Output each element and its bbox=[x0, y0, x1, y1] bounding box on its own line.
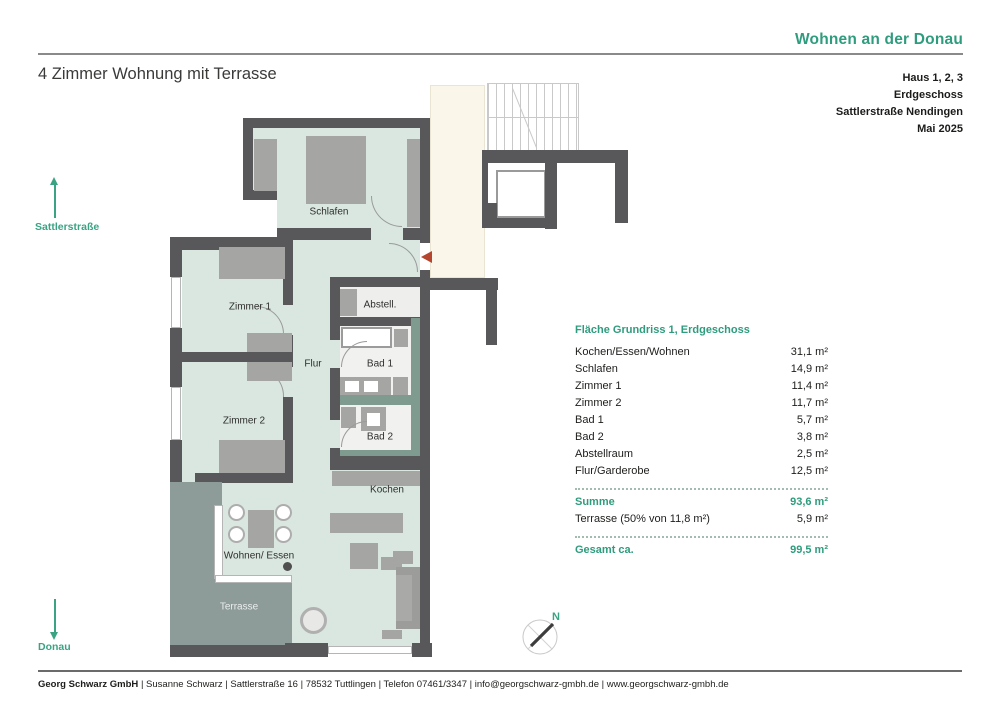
area-table: Fläche Grundriss 1, Erdgeschoss Kochen/E… bbox=[575, 322, 828, 559]
room-label-flur: Flur bbox=[304, 359, 321, 370]
entrance-arrow-icon bbox=[421, 251, 432, 263]
wall bbox=[403, 228, 430, 240]
info-line-datum: Mai 2025 bbox=[836, 121, 963, 138]
table-row: Schlafen 14,9 m² bbox=[575, 361, 828, 378]
storage-cabinet bbox=[340, 289, 357, 316]
wall bbox=[243, 118, 253, 200]
wall bbox=[420, 290, 430, 656]
armchair bbox=[350, 543, 378, 569]
page-title: 4 Zimmer Wohnung mit Terrasse bbox=[38, 65, 277, 84]
table-row: Bad 1 5,7 m² bbox=[575, 412, 828, 429]
terrasse-row: Terrasse (50% von 11,8 m²) 5,9 m² bbox=[575, 511, 828, 528]
header-rule bbox=[38, 53, 963, 55]
wall bbox=[482, 203, 497, 228]
wall bbox=[170, 328, 182, 387]
stairs-landing-line bbox=[487, 117, 579, 118]
table-row: Kochen/Essen/Wohnen 31,1 m² bbox=[575, 344, 828, 361]
table-row: Zimmer 1 11,4 m² bbox=[575, 378, 828, 395]
gesamt-label: Gesamt ca. bbox=[575, 542, 634, 559]
row-label: Abstellraum bbox=[575, 446, 633, 463]
row-label: Flur/Garderobe bbox=[575, 463, 650, 480]
chair bbox=[228, 504, 245, 521]
terrace-parapet bbox=[170, 645, 290, 657]
dotted-separator bbox=[575, 488, 828, 490]
sofa-cushion bbox=[382, 630, 402, 639]
wardrobe bbox=[247, 362, 292, 381]
wall bbox=[428, 278, 498, 290]
project-info: Haus 1, 2, 3 Erdgeschoss Sattlerstraße N… bbox=[836, 70, 963, 138]
sofa-seat bbox=[396, 575, 412, 621]
wall bbox=[330, 456, 422, 470]
table-row: Zimmer 2 11,7 m² bbox=[575, 395, 828, 412]
window bbox=[171, 277, 181, 328]
wall bbox=[330, 317, 420, 326]
bed bbox=[306, 136, 366, 204]
row-value: 11,7 m² bbox=[792, 395, 828, 412]
wall bbox=[482, 150, 628, 163]
row-value: 14,9 m² bbox=[791, 361, 828, 378]
sofa-cushion bbox=[393, 551, 413, 564]
dining-table bbox=[248, 510, 274, 548]
river-label: Donau bbox=[38, 641, 71, 653]
row-label: Kochen/Essen/Wohnen bbox=[575, 344, 690, 361]
wall bbox=[615, 163, 628, 223]
exterior-patch bbox=[243, 200, 277, 237]
wardrobe bbox=[247, 333, 292, 352]
chair bbox=[275, 504, 292, 521]
wall bbox=[285, 643, 328, 657]
window bbox=[328, 646, 412, 654]
bath-partition-wall bbox=[335, 395, 420, 405]
bath-partition-wall bbox=[411, 318, 420, 450]
brand-title: Wohnen an der Donau bbox=[795, 31, 963, 49]
area-table-title: Fläche Grundriss 1, Erdgeschoss bbox=[575, 322, 828, 338]
chair bbox=[275, 526, 292, 543]
row-label: Bad 2 bbox=[575, 429, 604, 446]
row-label: Zimmer 2 bbox=[575, 395, 621, 412]
table-row: Bad 2 3,8 m² bbox=[575, 429, 828, 446]
room-label-abstell: Abstell. bbox=[364, 300, 397, 311]
kitchen-island bbox=[330, 513, 403, 533]
corridor-floor bbox=[430, 85, 485, 278]
summe-label: Summe bbox=[575, 494, 615, 511]
street-label: Sattlerstraße bbox=[35, 221, 99, 233]
street-arrow-up-icon bbox=[50, 177, 58, 185]
room-label-bad1: Bad 1 bbox=[367, 359, 393, 370]
table-row: Abstellraum 2,5 m² bbox=[575, 446, 828, 463]
row-value: 5,7 m² bbox=[797, 412, 828, 429]
wall bbox=[486, 290, 497, 345]
coffee-table bbox=[300, 607, 327, 634]
window bbox=[171, 387, 181, 440]
shower-tray bbox=[367, 413, 380, 426]
info-line-haus: Haus 1, 2, 3 bbox=[836, 70, 963, 87]
room-label-zimmer2: Zimmer 2 bbox=[223, 416, 265, 427]
row-label: Bad 1 bbox=[575, 412, 604, 429]
footer-line: Georg Schwarz GmbH | Susanne Schwarz | S… bbox=[38, 679, 729, 690]
row-value: 12,5 m² bbox=[791, 463, 828, 480]
river-arrow-down-icon bbox=[50, 632, 58, 640]
room-label-schlafen: Schlafen bbox=[310, 207, 349, 218]
wall bbox=[496, 218, 557, 228]
wall bbox=[330, 277, 420, 287]
room-label-bad2: Bad 2 bbox=[367, 432, 393, 443]
wall bbox=[330, 368, 340, 420]
row-value: 3,8 m² bbox=[797, 429, 828, 446]
pendant-light-dot bbox=[283, 562, 292, 571]
row-value: 31,1 m² bbox=[791, 344, 828, 361]
footer-company: Georg Schwarz GmbH bbox=[38, 679, 138, 690]
footer-details: | Susanne Schwarz | Sattlerstraße 16 | 7… bbox=[141, 679, 729, 690]
wall bbox=[412, 643, 432, 657]
info-line-geschoss: Erdgeschoss bbox=[836, 87, 963, 104]
table-row: Flur/Garderobe 12,5 m² bbox=[575, 463, 828, 480]
summe-value: 93,6 m² bbox=[790, 494, 828, 511]
washbasin bbox=[364, 381, 378, 392]
terrasse-label: Terrasse (50% von 11,8 m²) bbox=[575, 511, 710, 528]
plan-sheet: Wohnen an der Donau 4 Zimmer Wohnung mit… bbox=[0, 0, 1000, 707]
river-arrow-line bbox=[54, 599, 56, 633]
wardrobe bbox=[407, 139, 420, 227]
row-value: 11,4 m² bbox=[792, 378, 828, 395]
row-value: 2,5 m² bbox=[797, 446, 828, 463]
footer-rule bbox=[38, 670, 962, 672]
room-label-zimmer1: Zimmer 1 bbox=[229, 302, 271, 313]
terrace-door bbox=[214, 505, 223, 579]
elevator bbox=[496, 170, 546, 218]
room-label-kochen: Kochen bbox=[370, 485, 404, 496]
compass-north-label: N bbox=[552, 611, 560, 623]
chair bbox=[228, 526, 245, 543]
room-label-wohnen-essen: Wohnen/ Essen bbox=[224, 551, 294, 562]
wall bbox=[170, 440, 182, 483]
street-arrow-line bbox=[54, 184, 56, 218]
wardrobe bbox=[254, 139, 277, 191]
bed bbox=[219, 247, 285, 279]
washbasin bbox=[345, 381, 359, 392]
wall bbox=[330, 278, 340, 340]
bed bbox=[219, 440, 285, 473]
wall bbox=[420, 270, 430, 290]
toilet bbox=[393, 377, 408, 395]
wall bbox=[420, 127, 430, 243]
terrasse-value: 5,9 m² bbox=[797, 511, 828, 528]
toilet bbox=[394, 329, 408, 347]
row-label: Zimmer 1 bbox=[575, 378, 621, 395]
gesamt-value: 99,5 m² bbox=[790, 542, 828, 559]
wall bbox=[182, 352, 293, 362]
wall bbox=[170, 237, 182, 277]
info-line-strasse: Sattlerstraße Nendingen bbox=[836, 104, 963, 121]
dotted-separator bbox=[575, 536, 828, 538]
gesamt-row: Gesamt ca. 99,5 m² bbox=[575, 542, 828, 559]
wall bbox=[330, 448, 340, 456]
terrace-door bbox=[215, 575, 292, 583]
row-label: Schlafen bbox=[575, 361, 618, 378]
wall bbox=[243, 118, 430, 128]
summe-row: Summe 93,6 m² bbox=[575, 494, 828, 511]
room-label-terrasse: Terrasse bbox=[220, 602, 258, 613]
wall bbox=[243, 190, 277, 200]
